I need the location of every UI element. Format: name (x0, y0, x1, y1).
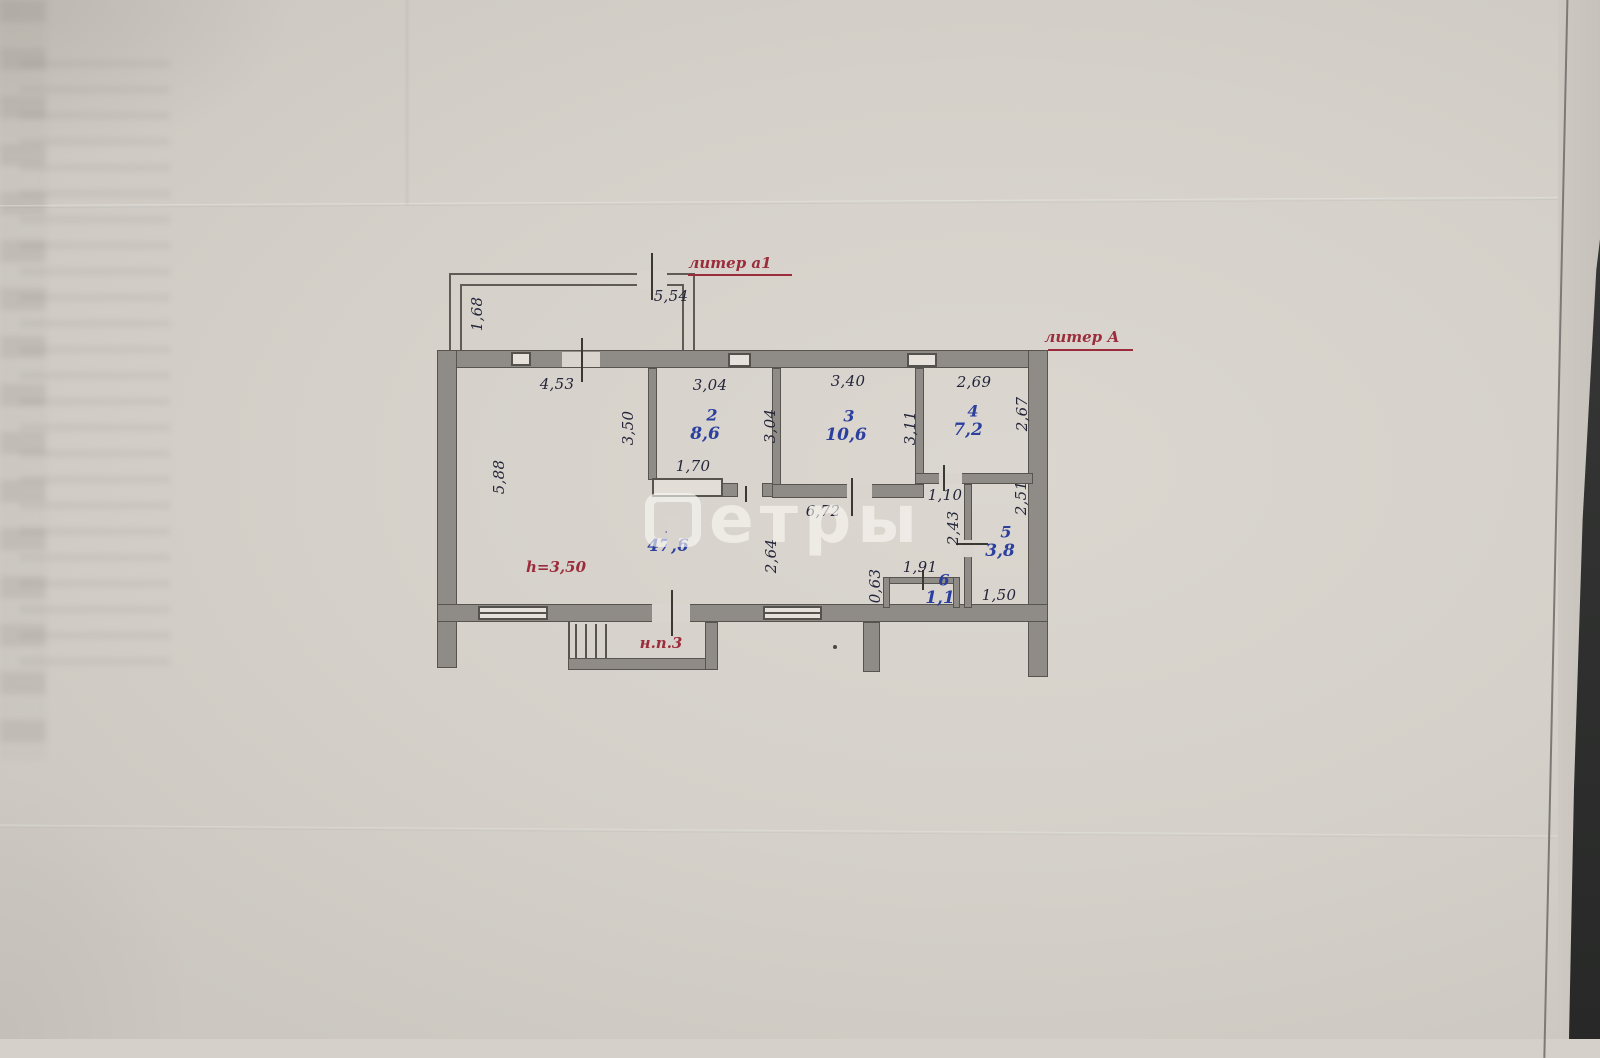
dimension-label: 3,04 (693, 376, 728, 394)
dimension-label: 2,64 (762, 539, 780, 574)
plan-labels-layer: 5,541,684,533,043,402,693,503,043,112,67… (0, 0, 1600, 1039)
dimension-label: 1,70 (676, 457, 711, 475)
room-5-area: 3,8 (985, 541, 1015, 561)
dimension-label: 2,43 (944, 511, 962, 546)
dimension-label: 5,88 (490, 460, 508, 495)
room-2-number: 2 (706, 406, 717, 425)
room-5-number: 5 (1000, 523, 1011, 542)
dimension-label: 3,04 (761, 409, 779, 444)
label-np3: н.п.3 (640, 634, 683, 652)
dimension-label: 2,67 (1013, 397, 1031, 432)
room-4-number: 4 (967, 402, 978, 421)
dimension-label: 5,54 (654, 287, 689, 305)
dimension-label: 2,69 (957, 373, 992, 391)
label-liter-a1: литер а1 (688, 254, 771, 272)
dimension-label: 3,40 (831, 372, 866, 390)
dimension-label: 4,53 (540, 375, 575, 393)
photo-background: етры 5,541,684,533,043,402,693,503,043,1… (0, 0, 1600, 1039)
label-liter-a1-underline (688, 274, 792, 276)
dimension-label: 0,63 (866, 569, 884, 604)
dimension-label: 6,72 (806, 502, 841, 520)
dimension-label: 1,91 (903, 558, 938, 576)
label-liter-A: литер А (1044, 328, 1119, 346)
dimension-label: 1,50 (982, 586, 1017, 604)
room-3-area: 10,6 (825, 425, 866, 445)
room-1-area: 47,6 (647, 536, 688, 556)
dimension-label: 3,11 (901, 411, 919, 446)
room-2-area: 8,6 (690, 424, 720, 444)
room-3-number: 3 (843, 407, 854, 426)
dimension-label: 3,50 (619, 411, 637, 446)
label-ceiling-height: h=3,50 (526, 558, 586, 576)
dimension-label: 1,68 (468, 297, 486, 332)
dimension-label: 1,10 (928, 486, 963, 504)
room-4-area: 7,2 (953, 420, 983, 440)
room-1-number: 1 (664, 518, 675, 537)
room-6-area: 1,1 (925, 588, 955, 608)
room-6-number: 6 (938, 571, 949, 590)
label-liter-A-underline (1048, 349, 1133, 351)
dimension-label: 2,51 (1012, 481, 1030, 516)
